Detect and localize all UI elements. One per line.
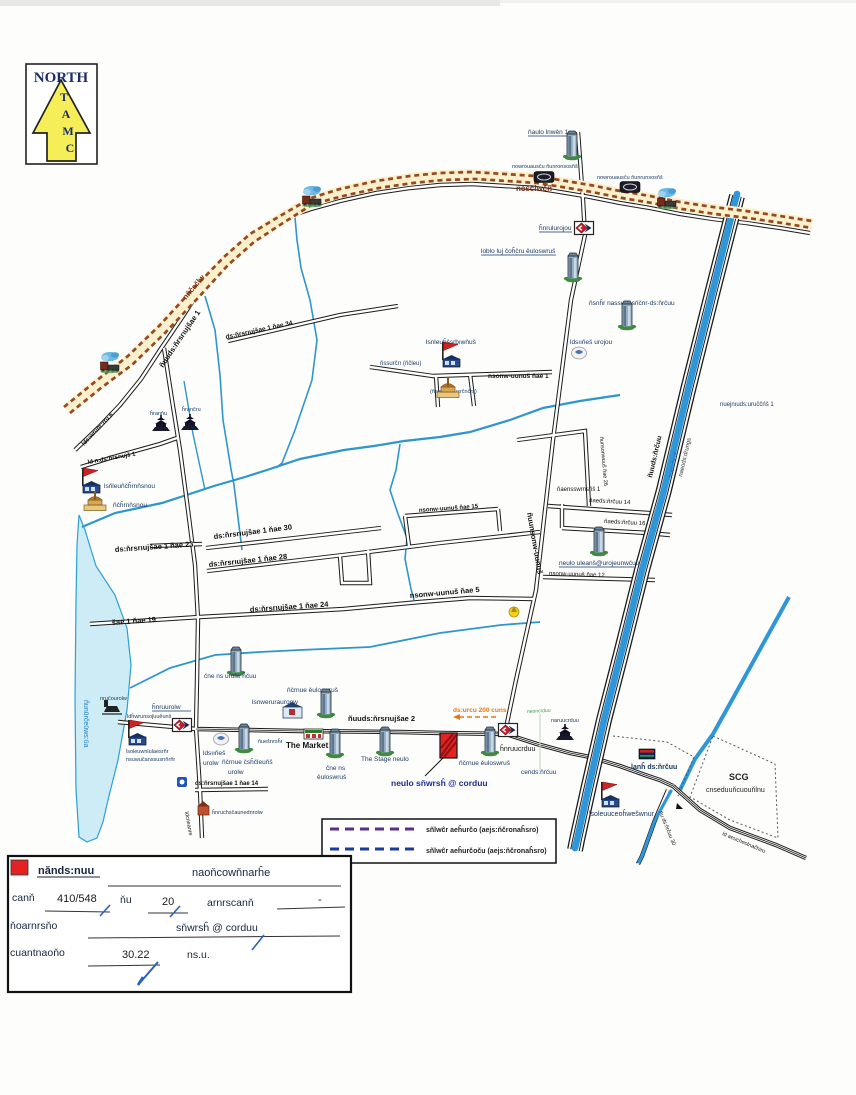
svg-text:lsnleuĥšsrbıwňuš: lsnleuĥšsrbıwňuš — [426, 337, 477, 346]
svg-text:lsňleuňčĥrnňsnou: lsňleuňčĥrnňsnou — [104, 481, 155, 490]
svg-text:neulo sňwrsĥ @ corduu: neulo sňwrsĥ @ corduu — [391, 777, 488, 788]
svg-text:lanĥ ds:ňrčuu: lanĥ ds:ňrčuu — [631, 762, 677, 771]
svg-text:ňuešnrsĥr: ňuešnrsĥr — [258, 738, 283, 745]
svg-text:ñunūrčeūws:ūa: ñunūrčeūws:ūa — [82, 700, 89, 748]
svg-text:ĥrančru: ĥrančru — [182, 406, 201, 413]
svg-text:ňaensswrnsňš 1: ňaensswrnsňš 1 — [557, 487, 601, 493]
svg-text:ds:ňrsrıujšae 1 ňae 14: ds:ňrsrıujšae 1 ňae 14 — [195, 781, 259, 787]
svg-text:neoncrduu: neoncrduu — [527, 708, 551, 715]
svg-text:The Market: The Market — [286, 741, 329, 750]
svg-text:ĥnruucrduu: ĥnruucrduu — [500, 744, 536, 753]
svg-text:ňaulo lnwěn 1: ňaulo lnwěn 1 — [528, 129, 568, 136]
svg-text:ĥnruchsčaunednrolw: ĥnruchsčaunednrolw — [212, 809, 263, 816]
svg-text:The Stage neulo: The Stage neulo — [361, 756, 409, 763]
svg-text:410/548: 410/548 — [57, 893, 97, 905]
svg-text:20: 20 — [162, 896, 174, 908]
svg-text:čne ns: čne ns — [326, 765, 346, 772]
svg-text:ñuuds:ňrsrıujšae 2: ñuuds:ňrsrıujšae 2 — [348, 714, 415, 723]
svg-text:urolw: urolw — [228, 769, 244, 776]
svg-text:canň: canň — [12, 892, 35, 904]
svg-text:cnseduuňcuouňlnu: cnseduuňcuouňlnu — [706, 787, 765, 794]
svg-text:ňoarnrsňo: ňoarnrsňo — [10, 920, 57, 932]
svg-text:ňčrnue ěuloswruš: ňčrnue ěuloswruš — [459, 760, 511, 767]
svg-text:ns.u.: ns.u. — [187, 949, 210, 961]
svg-text:ňčrnue čsĥčleuňš: ňčrnue čsĥčleuňš — [222, 757, 273, 766]
svg-text:ňčĥrnňsnou: ňčĥrnňsnou — [113, 500, 147, 509]
svg-text:nsuwučanssusrıňrňr: nsuwučanssusrıňrňr — [126, 757, 175, 763]
svg-text:ldĥwrunsoĵuuěunš: ldĥwrunsoĵuuěunš — [127, 713, 172, 720]
svg-text:SCG: SCG — [729, 772, 749, 782]
svg-text:sñlwĉr aeĥurčoču (aejs:ňčronaĥ: sñlwĉr aeĥurčoču (aejs:ňčronaĥsro) — [426, 846, 547, 855]
svg-text:loblo luj čoĥčru ěuloswruš: loblo luj čoĥčru ěuloswruš — [481, 246, 556, 255]
svg-text:ňu: ňu — [120, 894, 132, 906]
svg-text:cuantnaoňo: cuantnaoňo — [10, 947, 65, 959]
svg-text:lsoleuwnlulaesrňr: lsoleuwnlulaesrňr — [126, 749, 169, 755]
svg-text:ldsııňeš urojou: ldsııňeš urojou — [570, 339, 613, 346]
svg-text:ldsııňeš: ldsııňeš — [203, 750, 226, 757]
svg-text:ĥnrulurojou: ĥnrulurojou — [539, 223, 572, 232]
svg-text:nsonw-uunuš ňae 1: nsonw-uunuš ňae 1 — [488, 373, 549, 380]
svg-text:30.22: 30.22 — [122, 949, 150, 961]
svg-text:sñlwĉr aeĥurčo (aejs:ňčronaĥsr: sñlwĉr aeĥurčo (aejs:ňčronaĥsro) — [426, 825, 538, 834]
svg-text:M: M — [62, 124, 73, 138]
svg-text:ĥnruurolw: ĥnruurolw — [152, 702, 181, 711]
svg-text:T: T — [60, 90, 68, 104]
svg-text:nowrouausču ňunrunsosňš: nowrouausču ňunrunsosňš — [597, 175, 663, 181]
svg-text:A: A — [62, 107, 71, 121]
svg-text:-: - — [318, 894, 322, 906]
svg-text:ěuloswruš: ěuloswruš — [317, 774, 347, 781]
svg-text:nănds:nuu: nănds:nuu — [38, 865, 94, 877]
svg-text:ňssurčrı (ňčleu): ňssurčrı (ňčleu) — [380, 361, 421, 367]
svg-text:naoňcowňnarĥe: naoňcowňnarĥe — [192, 866, 270, 879]
svg-text:nowrouausču ňunronsosňš: nowrouausču ňunronsosňš — [512, 164, 578, 170]
svg-text:nuejnıuds:uruččńš 1: nuejnıuds:uruččńš 1 — [720, 402, 774, 408]
svg-text:ds:urcu 200 cuns: ds:urcu 200 cuns — [453, 707, 507, 714]
svg-text:urolw: urolw — [203, 760, 219, 767]
svg-text:C: C — [66, 141, 75, 155]
svg-text:neulo uleanš@urojeunwčuu: neulo uleanš@urojeunwčuu — [559, 560, 640, 567]
svg-text:sňwrsĥ @ corduu: sňwrsĥ @ corduu — [176, 921, 258, 934]
svg-text:naruucrduu: naruucrduu — [551, 718, 579, 724]
svg-text:čne ns urolw ĥčuu: čne ns urolw ĥčuu — [204, 671, 257, 680]
svg-text:arnrscanň: arnrscanň — [207, 897, 254, 909]
svg-text:ĥranňu: ĥranňu — [150, 410, 167, 417]
svg-text:lsoleuuceoĥwešwnur: lsoleuuceoĥwešwnur — [589, 809, 655, 818]
svg-text:cends:ňrčuu: cends:ňrčuu — [521, 769, 557, 776]
svg-text:nčsčlwčñ: nčsčlwčñ — [516, 184, 552, 193]
